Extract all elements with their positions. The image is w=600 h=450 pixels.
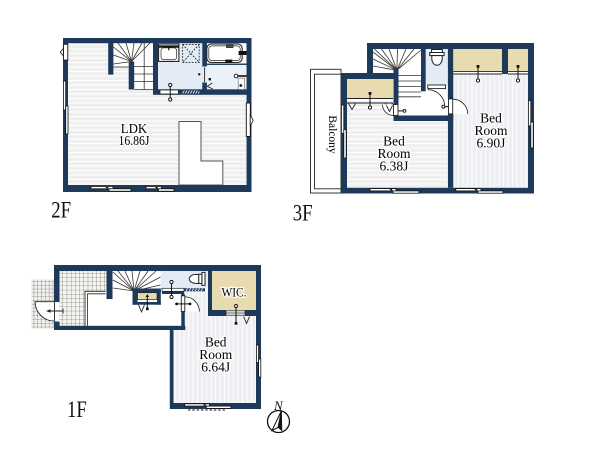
svg-text:6.38J: 6.38J	[380, 159, 409, 174]
svg-text:1F: 1F	[67, 397, 87, 423]
svg-text:N: N	[273, 398, 284, 413]
svg-text:6.64J: 6.64J	[201, 360, 230, 375]
svg-text:Balcony: Balcony	[326, 115, 338, 154]
svg-text:6.90J: 6.90J	[477, 135, 506, 150]
svg-text:WIC.: WIC.	[222, 285, 247, 299]
svg-text:2F: 2F	[51, 197, 71, 223]
svg-text:3F: 3F	[293, 201, 313, 227]
svg-text:16.86J: 16.86J	[119, 134, 150, 149]
